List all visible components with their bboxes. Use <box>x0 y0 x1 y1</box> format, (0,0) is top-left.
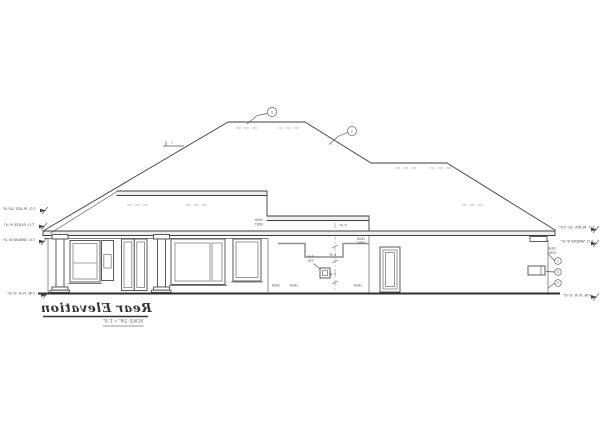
window-left-narrow <box>102 241 114 281</box>
elevation-label: T.O. PLATE 10'-10" <box>559 225 596 230</box>
door-right <box>380 247 400 292</box>
base-vent-mark: 16x8 <box>290 284 298 288</box>
box-label-line1: 4x4 <box>307 255 313 259</box>
title-block: Rear Elevation SCALE: 1/4" = 1'-0" <box>40 300 152 326</box>
right-upper-slope <box>305 122 371 163</box>
upper-fascia-band <box>117 191 267 196</box>
left-hip-return <box>50 192 117 234</box>
elevation-label: T.O. WNDW 8'-0" <box>561 239 595 244</box>
vent-note-line2: VENT <box>547 251 557 255</box>
meter-box <box>528 266 545 275</box>
rear-elevation-sheet: 7 2 1 <box>0 0 600 432</box>
frieze-block <box>530 237 547 242</box>
foundation-vent-marks: 16x8 16x8 16x8 <box>272 284 362 288</box>
right-lower-slope <box>447 163 555 230</box>
vent-note-2: 16x8 VENT <box>356 237 366 245</box>
vent-note-line1: 16x8 <box>357 237 365 241</box>
drawing-title: Rear Elevation <box>40 300 152 315</box>
porch-post-1 <box>50 235 70 293</box>
leader-line <box>314 264 320 269</box>
elevation-label: T.O. WNDW 8'-0" <box>3 237 37 242</box>
window-picture <box>231 239 263 282</box>
roof-pitch-symbol: 7 <box>163 141 184 146</box>
roof-keynote-1: 2 <box>247 107 277 124</box>
french-doors <box>122 239 148 291</box>
keynote-number: 2 <box>557 270 559 274</box>
box-label-line2: TYP. <box>307 259 315 263</box>
keynote-number: 2 <box>271 110 273 114</box>
porch-post-2 <box>152 235 172 293</box>
elevation-label: FIN. FLR. 0'-0" <box>563 292 591 297</box>
eave-fascia-band <box>43 231 555 236</box>
patio-recess-outline <box>278 244 369 258</box>
elevation-label: FIN. FLR. 0'-0" <box>7 290 35 295</box>
vent-note-line2: VENT <box>356 241 366 245</box>
vent-note-1: 16x8 VENT <box>254 218 264 226</box>
right-elevation-annotations: T.O. PLATE 10'-10" T.O. WNDW 8'-0" FIN. … <box>559 225 599 301</box>
dim-label-low: 2'-8" <box>328 273 336 277</box>
elevation-drawing: 7 2 1 <box>0 0 600 432</box>
elevation-label: T.O. PLATE 10'-8" <box>2 206 36 211</box>
mid-fascia-band <box>267 216 369 221</box>
keynote-number: 1 <box>351 129 353 133</box>
roof-keynote-2: 1 <box>329 126 357 144</box>
utility-box-label: 4x4 TYP. <box>307 255 315 264</box>
window-slider <box>169 239 227 286</box>
window-left-large <box>68 241 102 284</box>
vent-note-line1: 16x8 <box>548 247 556 251</box>
left-roof-slope <box>43 122 228 231</box>
base-vent-mark: 16x8 <box>354 284 362 288</box>
vent-note-line2: VENT <box>254 222 264 226</box>
scale-note: SCALE: 1/4" = 1'-0" <box>103 319 143 324</box>
keynote-number: 1 <box>557 259 559 263</box>
elevation-label: T.O. PLATE 9'-4" <box>3 222 35 227</box>
dim-label-top: 9'-4" <box>339 224 347 228</box>
utility-box <box>314 264 331 279</box>
roof-outline <box>43 122 555 239</box>
base-vent-mark: 16x8 <box>272 284 280 288</box>
left-elevation-annotations: T.O. PLATE 10'-8" T.O. PLATE 9'-4" T.O. … <box>2 206 49 299</box>
dim-label-mid: 6'-8" <box>328 253 336 257</box>
pitch-label: 7 <box>171 141 173 145</box>
vent-note-line1: 16x8 <box>255 218 263 222</box>
keynote-number: 3 <box>557 281 559 285</box>
